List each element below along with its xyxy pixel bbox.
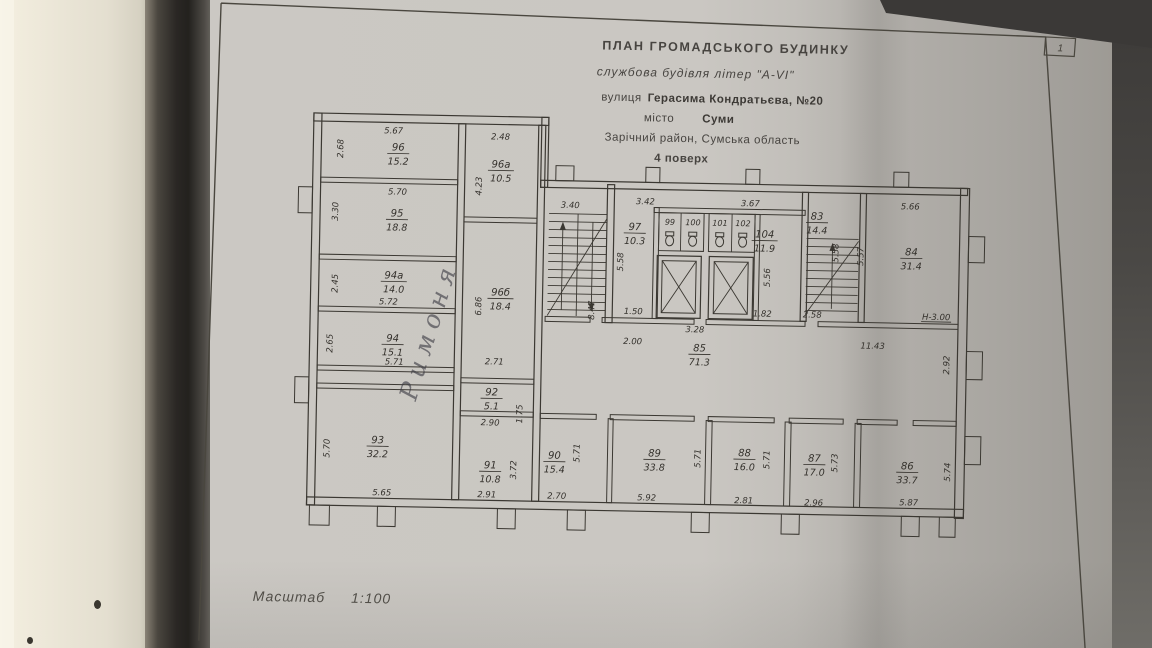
room-number: 94а [384,270,403,281]
dimension-label: 2.58 [803,310,823,320]
room-number: 84 [905,247,918,258]
dimension-label: 5.58 [616,252,626,272]
dimension-label: 5.72 [379,297,398,307]
toilet-icon [739,233,747,247]
dimension-label: 2.92 [942,356,952,375]
dimension-label: 2.71 [485,357,504,367]
floor-plan-drawing: 9615.2 9518.8 94а14.0 9415.1 96а10.5 96б… [290,91,999,574]
room-number: 87 [808,453,822,464]
dimension-label: 5.70 [322,439,332,458]
room-number: 97 [628,222,642,233]
dimension-label: 2.81 [734,496,753,506]
room-area: 31.4 [900,261,921,272]
room-labels: 9615.2 9518.8 94а14.0 9415.1 96а10.5 96б… [366,142,924,494]
dimension-label: 5.71 [762,450,772,469]
page-number: 1 [1057,43,1063,54]
dimension-label: 5.87 [899,498,919,508]
dimension-label: 11.43 [860,341,885,351]
room-area: 10.5 [490,173,511,184]
room-area: 11.9 [754,243,775,254]
room-area: 16.0 [734,462,755,473]
room-number: 83 [811,211,824,222]
dimension-label: 2.96 [804,498,824,508]
dimension-label: 5.73 [830,453,840,472]
room-number: 94 [386,333,399,344]
dimension-label: 2.00 [623,337,642,347]
room-number: 90 [548,450,561,461]
dimension-label: 2.48 [491,132,511,142]
dimension-label: 4.23 [474,177,484,196]
room-number: 93 [371,435,384,446]
scale-label: Масштаб [253,588,326,605]
room-number: 85 [693,343,706,354]
scale-value: 1:100 [351,590,391,607]
drawing-sheet: 1 ПЛАН ГРОМАДСЬКОГО БУДИНКУ службова буд… [0,0,1152,648]
dimension-label: 5.74 [943,463,953,482]
room-number: 96а [492,159,511,170]
dimension-label: 3.28 [685,325,705,335]
dimension-label: 1.82 [753,309,772,319]
dimension-label: 2.90 [481,418,500,428]
scale-note: Масштаб1:100 [253,588,392,607]
main-staircase [547,213,607,316]
room-number: 96б [491,286,510,298]
room-number: 88 [738,448,751,459]
background-speck [27,637,33,644]
dimension-label: 5.56 [763,268,773,288]
dimension-label: 5.58 [831,243,841,263]
dimension-label: 5.67 [384,126,404,136]
dimension-label: 5.70 [388,187,407,197]
dimension-label: 2.45 [331,274,341,293]
toilet-icon [689,232,697,246]
elevator-shaft [656,256,701,319]
dimension-label: 2.70 [547,491,566,501]
dimension-label: 8.47 [587,300,597,320]
room-number: 102 [735,219,750,228]
dimension-label: 3.42 [636,197,655,207]
dimension-label: 2.68 [336,138,346,158]
room-area: 15.4 [544,464,565,475]
room-number: 95 [391,208,404,219]
dimension-label: 5.57 [856,246,866,266]
room-number: 104 [755,229,774,240]
room-area: 14.0 [383,284,404,295]
toilet-icon [716,233,724,247]
room-area: 10.3 [624,236,645,247]
dimension-label: 5.92 [637,493,656,503]
room-area: 10.8 [479,474,500,485]
room-area: 18.4 [490,301,511,312]
dimension-label: 3.30 [331,202,341,221]
room-area: 18.8 [386,222,407,233]
room-number: 89 [648,448,661,459]
dimension-label: 1.50 [624,307,643,317]
dimension-label: 5.65 [372,488,391,498]
room-number: 100 [685,218,700,227]
dimension-label: 5.71 [572,443,582,462]
room-number: 92 [485,387,498,398]
room-number: 99 [665,218,675,227]
dimension-label: 2.91 [477,490,496,500]
room-area: 15.2 [387,156,408,167]
dimension-label: 2.65 [325,334,335,353]
room-number: 86 [901,461,914,472]
dimension-label: 5.71 [385,357,404,367]
room-area: 14.4 [806,225,827,236]
room-area: 71.3 [689,357,710,368]
dimension-label: 6.86 [474,296,484,316]
dimension-label: 3.67 [741,199,761,209]
photo-of-floor-plan: 1 ПЛАН ГРОМАДСЬКОГО БУДИНКУ службова буд… [0,0,1152,648]
room-area: 5.1 [484,401,499,412]
room-number: 96 [392,142,405,153]
dimension-label: 5.66 [901,202,921,212]
dimension-label: 3.40 [561,201,580,211]
room-area: 33.8 [644,462,665,473]
dimension-label: 5.71 [693,449,703,468]
room-area: 33.7 [896,475,917,486]
room-number: 91 [484,460,497,471]
elevator-shaft [708,257,753,320]
room-number: 101 [712,219,727,228]
dimension-label: 3.72 [509,460,519,479]
dimension-label: 1.75 [515,404,525,423]
toilet-icon [666,232,674,246]
room-area: 32.2 [367,449,388,460]
room-area: 17.0 [803,467,824,478]
